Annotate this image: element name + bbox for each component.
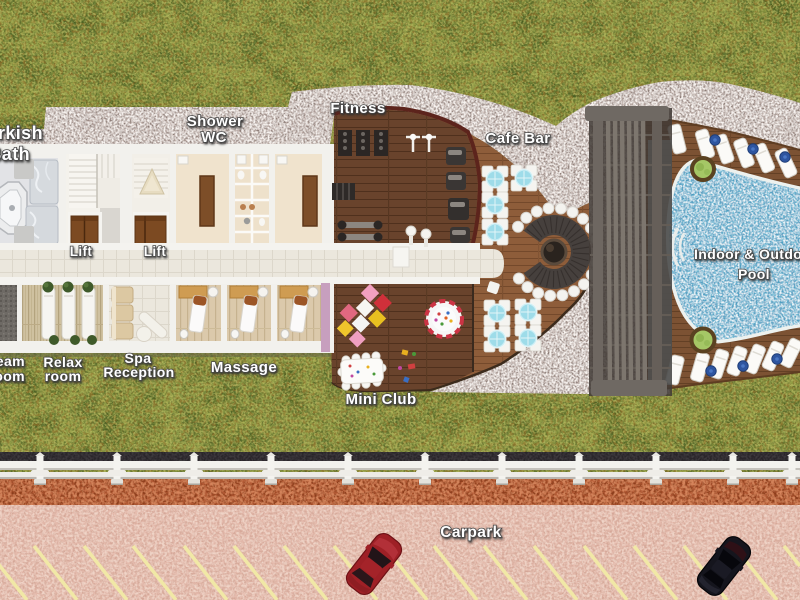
svg-text:Carpark: Carpark [440, 524, 501, 541]
svg-text:Reception: Reception [103, 364, 174, 380]
svg-text:Mini Club: Mini Club [345, 391, 416, 408]
svg-text:WC: WC [201, 129, 227, 146]
svg-text:Massage: Massage [211, 359, 277, 376]
svg-text:Shower: Shower [187, 113, 244, 130]
svg-text:Lift: Lift [70, 244, 93, 259]
svg-text:Fitness: Fitness [330, 100, 385, 117]
svg-text:Steam: Steam [0, 353, 25, 369]
svg-text:Turkish: Turkish [0, 123, 43, 143]
svg-text:Pool: Pool [738, 266, 770, 282]
svg-text:Cafe Bar: Cafe Bar [486, 130, 551, 147]
svg-text:Lift: Lift [144, 244, 167, 259]
svg-text:room: room [45, 368, 82, 384]
svg-text:room: room [0, 368, 25, 384]
svg-text:Bath: Bath [0, 144, 30, 164]
svg-text:Indoor & Outdoor: Indoor & Outdoor [694, 246, 800, 262]
